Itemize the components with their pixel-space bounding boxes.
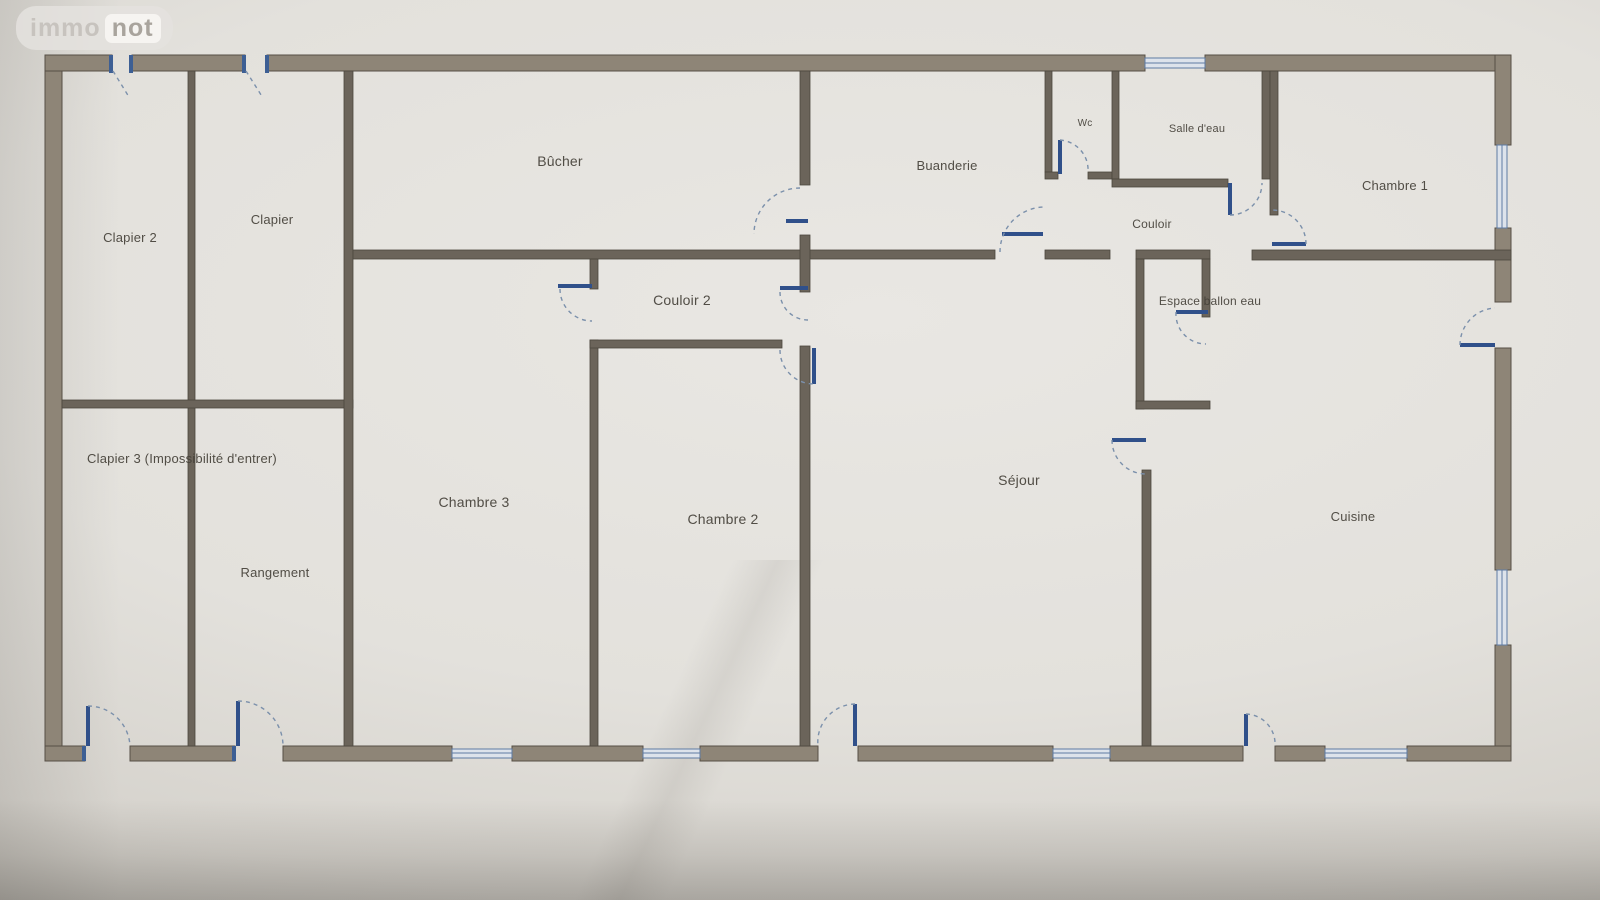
wall-segment [353, 250, 995, 259]
wall-segment [130, 746, 235, 761]
room-label-chambre-3: Chambre 3 [438, 494, 509, 510]
wall-segment [1136, 259, 1144, 409]
wall-segment [344, 71, 353, 746]
wall-segment [267, 55, 1145, 71]
immonot-logo: immo not [16, 6, 173, 50]
wall-segment [590, 340, 598, 746]
door-swing-arc [1176, 312, 1206, 344]
door-swing-arc [1230, 183, 1262, 215]
wall-segment [1112, 71, 1119, 179]
room-label-couloir-2: Couloir 2 [653, 292, 711, 308]
room-label-chambre-2: Chambre 2 [687, 511, 758, 527]
room-label-salle-deau: Salle d'eau [1169, 123, 1225, 135]
door-swing-arc [1246, 714, 1275, 746]
room-label-espace-ballon-eau: Espace ballon eau [1159, 294, 1261, 308]
room-label-chambre-1: Chambre 1 [1362, 178, 1428, 193]
wall-segment [800, 71, 810, 185]
room-label-bucher: Bûcher [537, 153, 583, 169]
door-swing-arc [754, 188, 800, 234]
wall-segment [1407, 746, 1511, 761]
door-jamb [232, 746, 236, 761]
wall-segment [590, 340, 782, 348]
wall-segment [45, 55, 112, 71]
wall-segment [1045, 172, 1058, 179]
wall-segment [1112, 179, 1228, 187]
door-jamb [242, 55, 246, 73]
door-swing-arc [238, 701, 283, 746]
wall-segment [800, 346, 810, 746]
wall-segment [1205, 55, 1511, 71]
interior-walls [62, 71, 1511, 746]
door-swing-arc [113, 71, 129, 97]
wall-segment [132, 55, 245, 71]
door-jamb [109, 55, 113, 73]
wall-segment [1262, 71, 1270, 179]
wall-segment [1202, 259, 1210, 317]
wall-segment [700, 746, 818, 761]
wall-segment [1045, 71, 1052, 172]
room-label-clapier-3: Clapier 3 (Impossibilité d'entrer) [87, 451, 277, 466]
room-label-sejour: Séjour [998, 472, 1040, 488]
room-label-rangement: Rangement [240, 565, 309, 580]
wall-segment [800, 235, 810, 292]
wall-segment [1495, 645, 1511, 761]
wall-segment [1088, 172, 1112, 179]
room-label-buanderie: Buanderie [916, 158, 977, 173]
room-label-wc: Wc [1078, 118, 1093, 129]
logo-immo-text: immo [30, 14, 101, 43]
wall-segment [1045, 250, 1110, 259]
wall-segment [1252, 250, 1511, 260]
wall-segment [1136, 401, 1210, 409]
wall-segment [45, 746, 85, 761]
door-jamb [129, 55, 133, 73]
door-swing-arc [560, 289, 592, 321]
wall-segment [1110, 746, 1243, 761]
wall-segment [188, 71, 195, 746]
logo-not-badge: not [105, 14, 161, 43]
room-label-clapier-2: Clapier 2 [103, 230, 157, 245]
door-swing-arc [88, 706, 130, 746]
door-jamb [82, 746, 86, 761]
door-swing-arc [1060, 140, 1088, 172]
room-label-cuisine: Cuisine [1331, 509, 1376, 524]
wall-segment [1275, 746, 1325, 761]
room-label-clapier: Clapier [251, 212, 294, 227]
wall-segment [512, 746, 643, 761]
wall-segment [45, 55, 62, 761]
wall-segment [1495, 348, 1511, 570]
door-swing-arc [818, 704, 855, 746]
windows [452, 58, 1507, 758]
room-label-couloir: Couloir [1132, 217, 1171, 231]
door-swing-arc [246, 71, 263, 98]
door-swing-arc [1000, 207, 1045, 252]
door-swing-arc [1460, 308, 1495, 345]
door-jamb [265, 55, 269, 73]
wall-segment [1136, 250, 1210, 259]
wall-segment [1142, 470, 1151, 746]
door-swing-arc [1112, 440, 1146, 474]
floor-plan-canvas: Clapier 2 Clapier Bûcher Buanderie Wc Sa… [0, 0, 1600, 900]
door-swing-arc [780, 292, 808, 320]
wall-segment [1495, 55, 1511, 145]
wall-segment [62, 400, 353, 408]
wall-segment [1495, 228, 1511, 302]
wall-segment [283, 746, 452, 761]
wall-segment [858, 746, 1053, 761]
wall-segment [1270, 71, 1278, 215]
